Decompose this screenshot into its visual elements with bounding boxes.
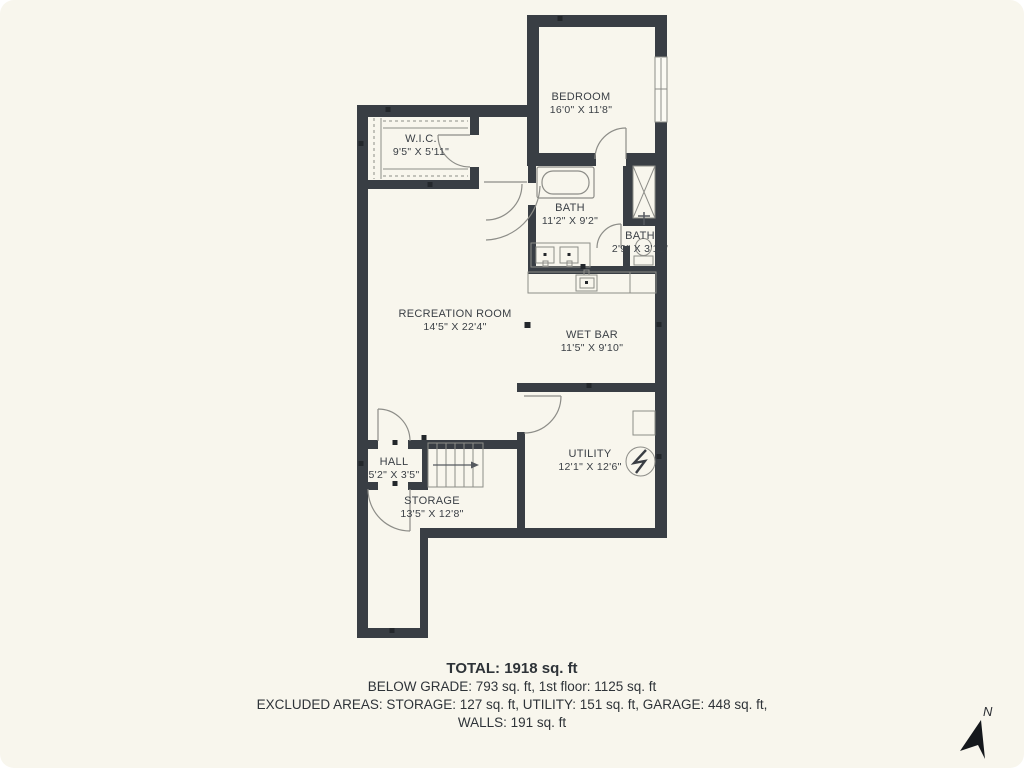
room-label-bath: BATH 11'2" X 9'2" — [542, 202, 598, 228]
stairs-direction-arrow — [433, 462, 479, 469]
room-name: HALL — [369, 456, 420, 469]
room-label-recreation: RECREATION ROOM 14'5" X 22'4" — [398, 308, 511, 334]
shower-icon — [633, 166, 655, 225]
summary-total: TOTAL: 1918 sq. ft — [0, 660, 1024, 678]
stairs — [428, 443, 483, 487]
door-arc-bedroom — [595, 128, 626, 159]
room-dims: 9'5" X 5'11" — [393, 146, 449, 159]
electrical-panel-icon — [626, 447, 655, 476]
room-name: BATH — [612, 230, 668, 243]
room-name: UTILITY — [558, 448, 621, 461]
room-label-wic: W.I.C. 9'5" X 5'11" — [393, 133, 449, 159]
room-label-bedroom: BEDROOM 16'0" X 11'8" — [550, 91, 612, 117]
room-label-wet-bar: WET BAR 11'5" X 9'10" — [561, 329, 623, 355]
room-dims: 2'9" X 3'11" — [612, 243, 668, 256]
room-name: RECREATION ROOM — [398, 308, 511, 321]
room-dims: 16'0" X 11'8" — [550, 104, 612, 117]
floor-plan-page: BEDROOM 16'0" X 11'8" W.I.C. 9'5" X 5'11… — [0, 0, 1024, 768]
room-name: BEDROOM — [550, 91, 612, 104]
floor-plan-drawing — [0, 0, 1024, 768]
room-dims: 12'1" X 12'6" — [558, 461, 621, 474]
room-name: W.I.C. — [393, 133, 449, 146]
room-label-hall: HALL 5'2" X 3'5" — [369, 456, 420, 482]
room-label-utility: UTILITY 12'1" X 12'6" — [558, 448, 621, 474]
room-name: WET BAR — [561, 329, 623, 342]
water-heater-icon — [633, 411, 655, 435]
vanity-sinks-icon — [531, 243, 590, 267]
north-label: N — [983, 704, 993, 719]
room-dims: 13'5" X 12'8" — [400, 508, 463, 521]
room-name: STORAGE — [400, 495, 463, 508]
summary-walls: WALLS: 191 sq. ft — [0, 714, 1024, 732]
room-dims: 5'2" X 3'5" — [369, 469, 420, 482]
room-dims: 14'5" X 22'4" — [398, 321, 511, 334]
area-summary: TOTAL: 1918 sq. ft BELOW GRADE: 793 sq. … — [0, 660, 1024, 732]
summary-excluded-areas: EXCLUDED AREAS: STORAGE: 127 sq. ft, UTI… — [0, 696, 1024, 714]
door-arc-utility — [524, 396, 561, 433]
room-dims: 11'5" X 9'10" — [561, 342, 623, 355]
room-label-bath-small: BATH 2'9" X 3'11" — [612, 230, 668, 256]
north-arrow-icon: N — [950, 686, 1020, 766]
door-arc-hall-top — [378, 409, 410, 441]
room-name: BATH — [542, 202, 598, 215]
bathtub-icon — [537, 167, 594, 198]
room-dims: 11'2" X 9'2" — [542, 215, 598, 228]
bedroom-window-icon — [655, 57, 667, 122]
summary-below-grade: BELOW GRADE: 793 sq. ft, 1st floor: 1125… — [0, 678, 1024, 696]
room-label-storage: STORAGE 13'5" X 12'8" — [400, 495, 463, 521]
